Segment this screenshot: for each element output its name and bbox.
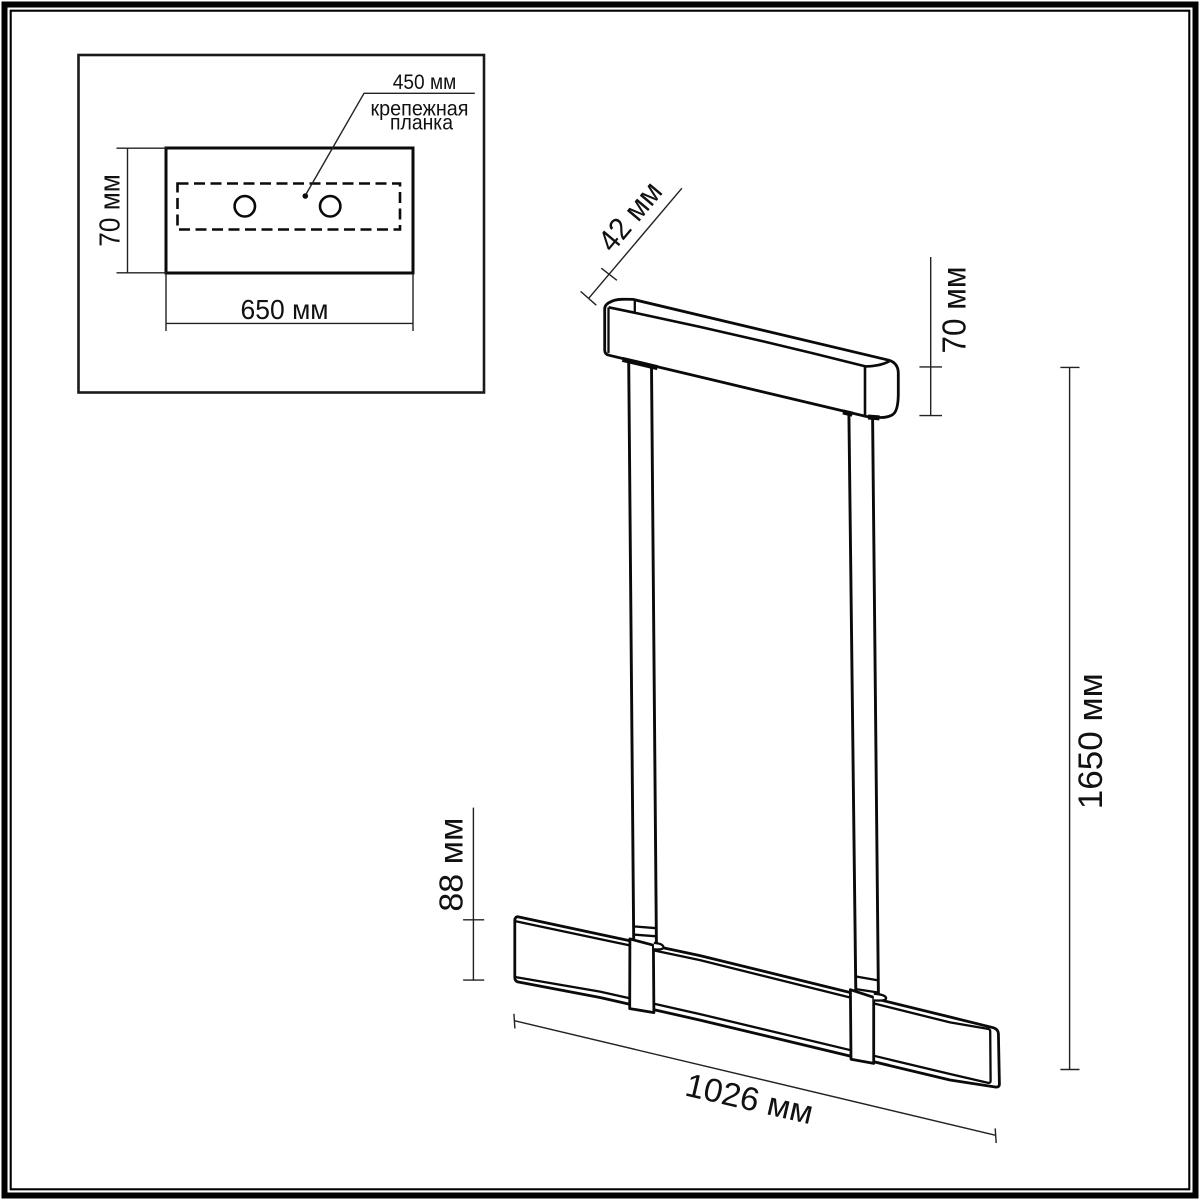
svg-text:88 мм: 88 мм [432,818,469,912]
svg-text:планка: планка [390,112,453,135]
svg-text:450 мм: 450 мм [393,71,457,94]
svg-text:650 мм: 650 мм [241,294,329,325]
svg-text:1650 мм: 1650 мм [1072,673,1110,809]
svg-text:70 мм: 70 мм [937,267,974,354]
svg-text:70 мм: 70 мм [95,174,127,247]
